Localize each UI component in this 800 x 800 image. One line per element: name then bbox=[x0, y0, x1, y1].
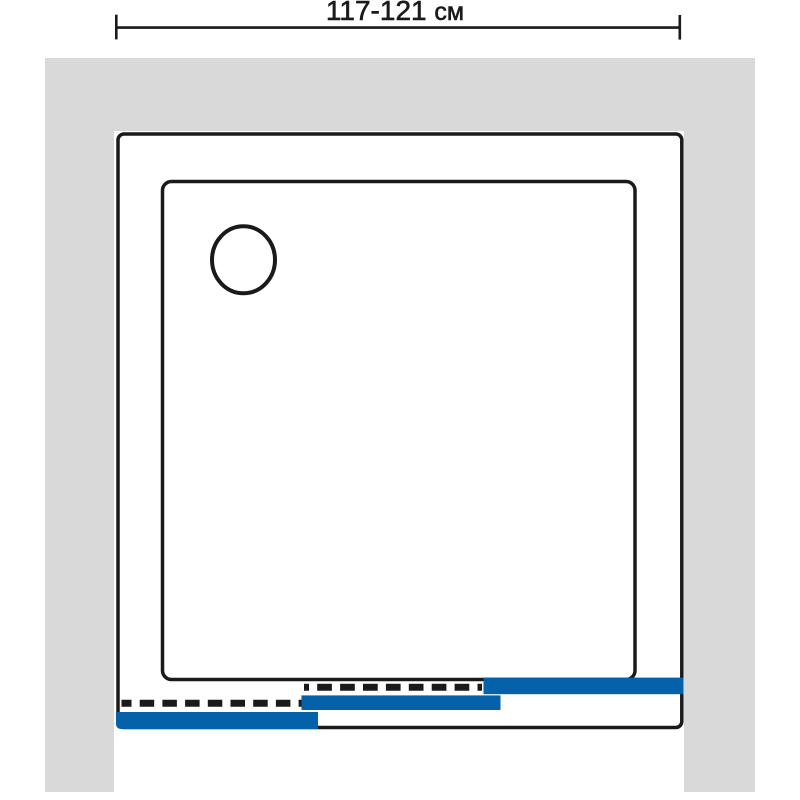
svg-text:117-121 см: 117-121 см bbox=[326, 0, 464, 26]
